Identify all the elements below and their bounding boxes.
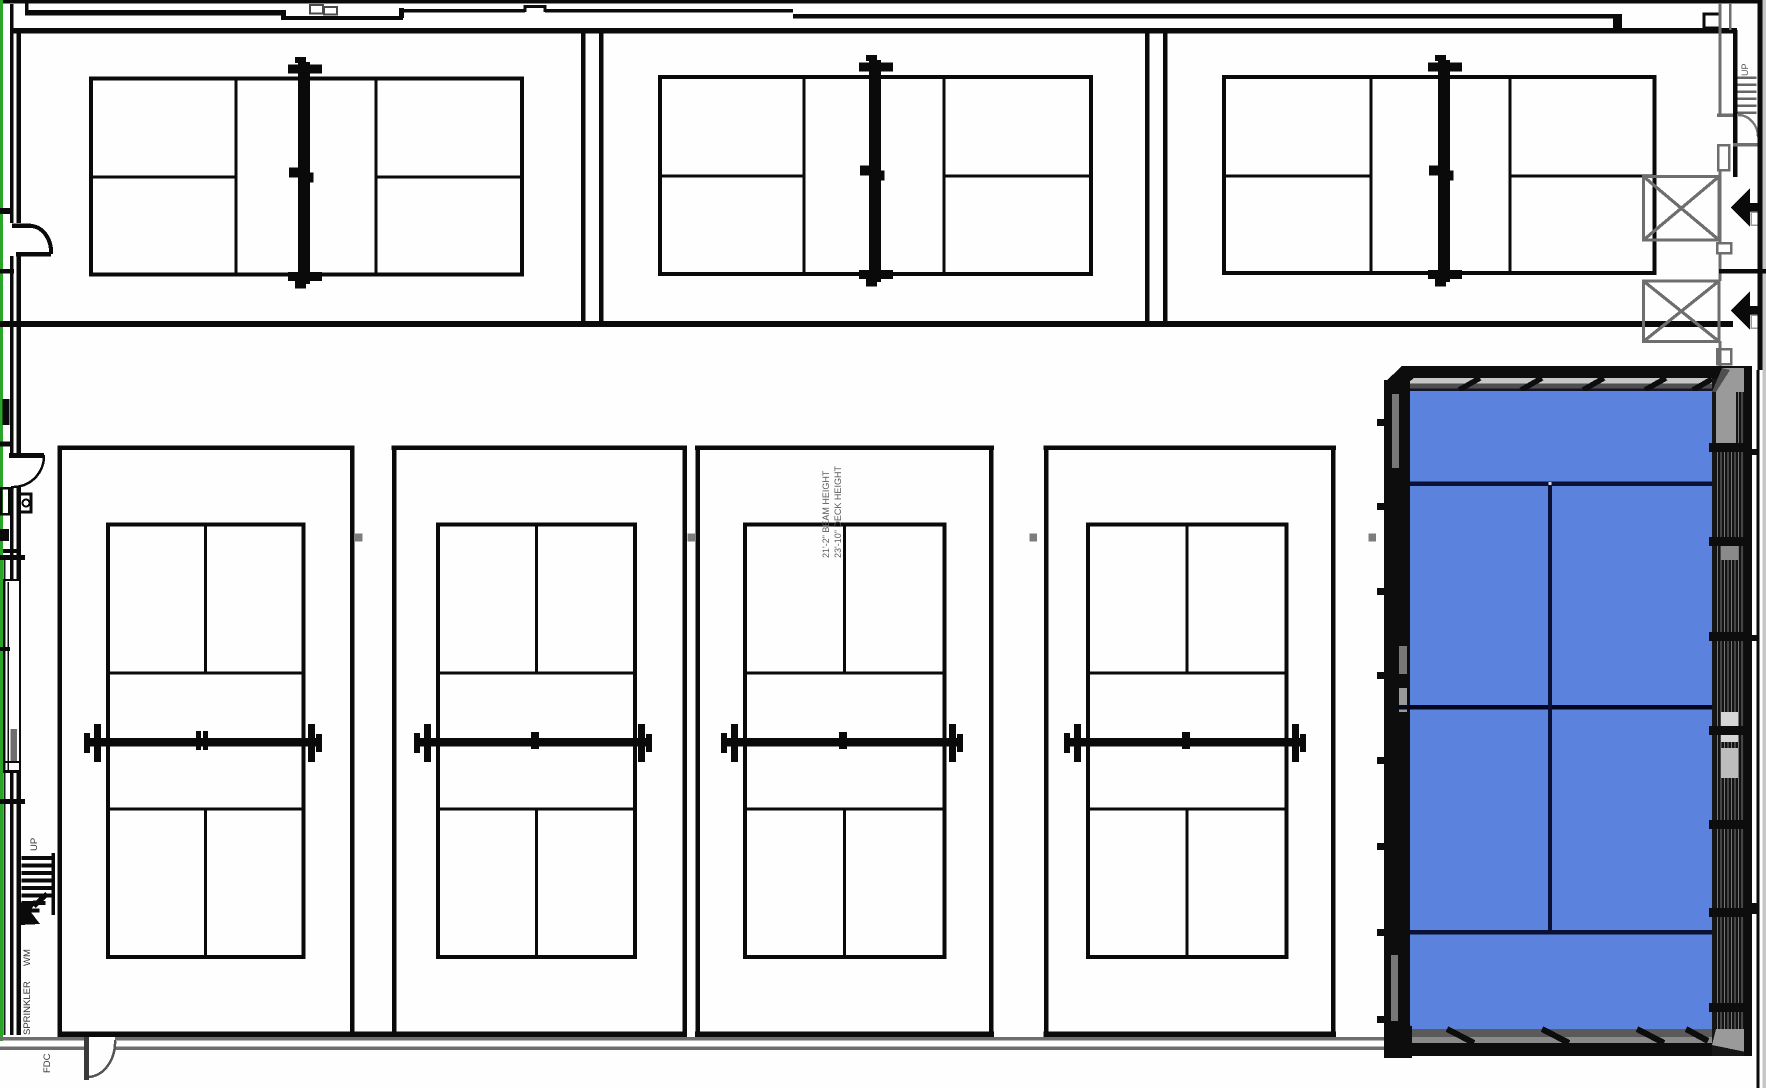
svg-text:WM: WM: [22, 949, 33, 966]
svg-text:FDC: FDC: [42, 1053, 53, 1073]
svg-text:SPRINKLER: SPRINKLER: [22, 981, 33, 1035]
svg-text:UP: UP: [29, 838, 40, 851]
svg-text:UP: UP: [1740, 63, 1750, 76]
svg-text:23'-10" DECK HEIGHT: 23'-10" DECK HEIGHT: [833, 466, 843, 558]
svg-text:21'-2" BEAM HEIGHT: 21'-2" BEAM HEIGHT: [821, 470, 831, 558]
